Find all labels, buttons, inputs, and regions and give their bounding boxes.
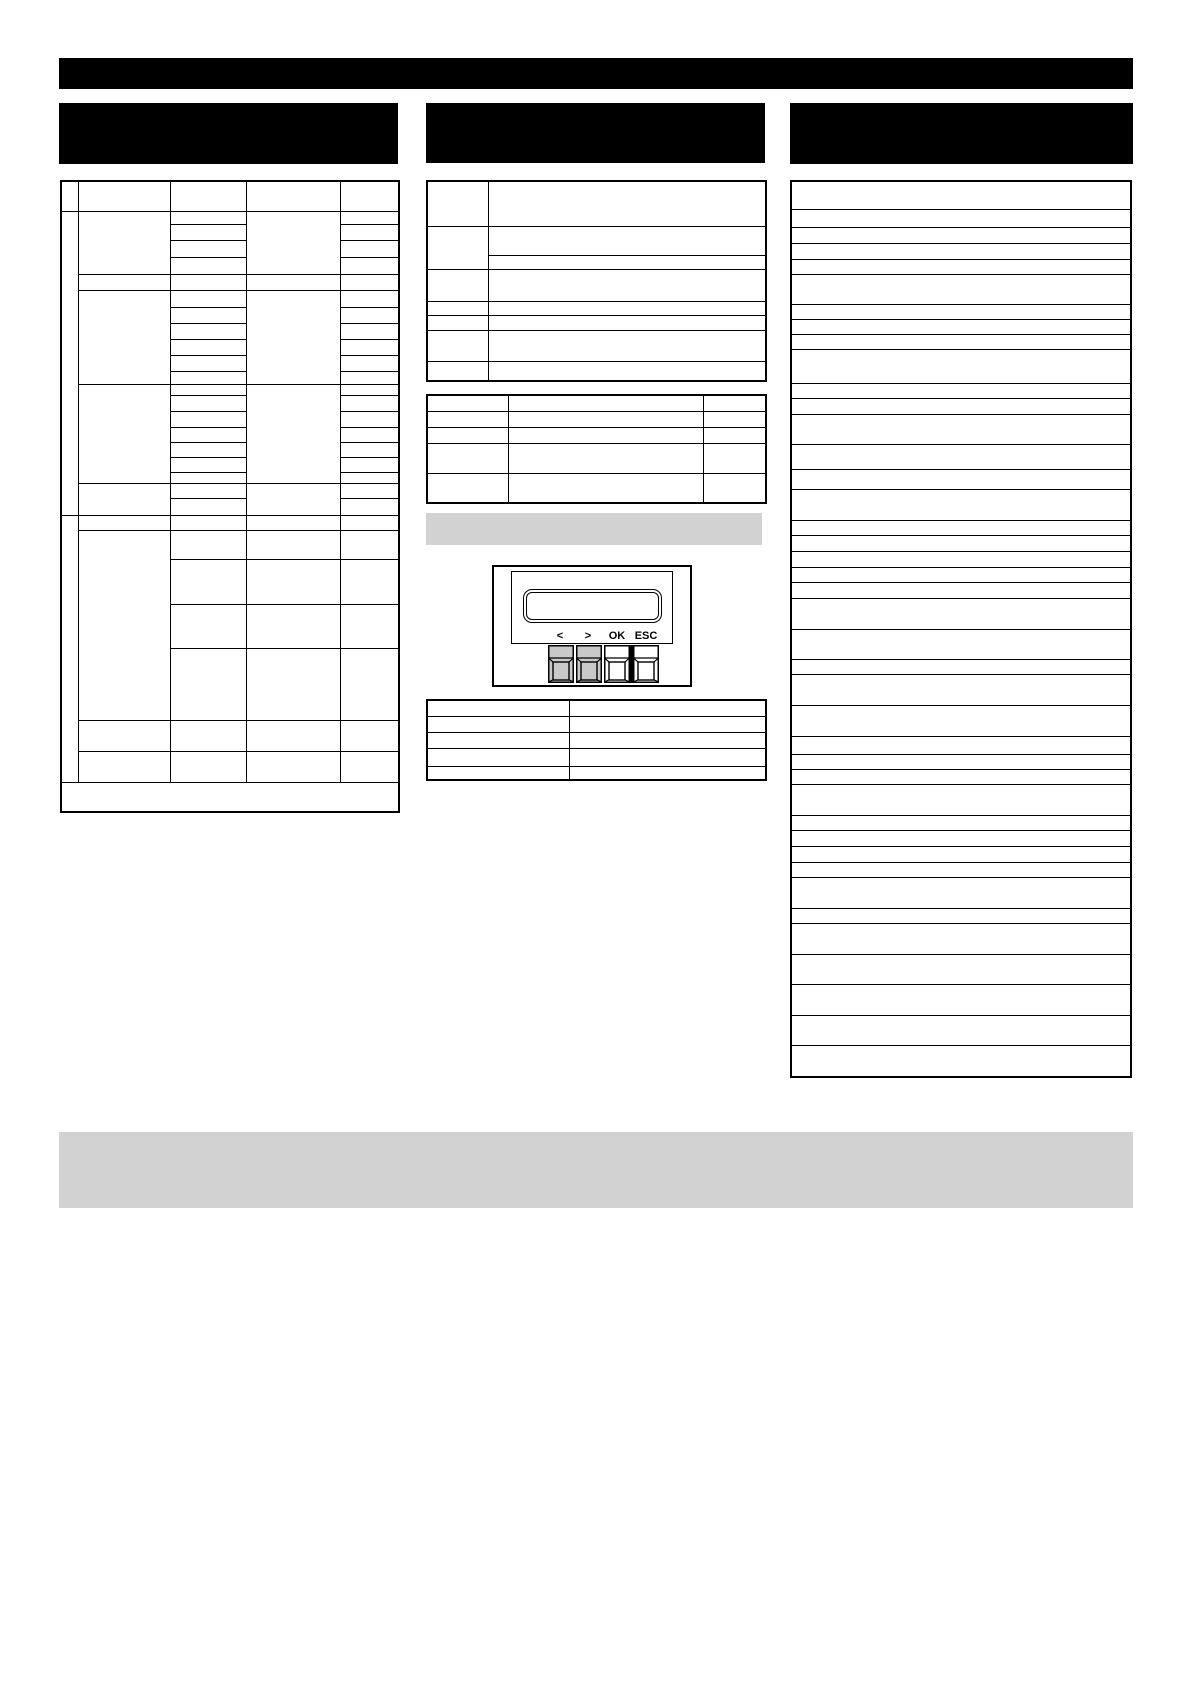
cell [340,371,399,384]
cell [170,211,246,224]
list-row [792,228,1130,244]
cell [340,307,399,323]
middle-lower-table [426,699,767,781]
cell [488,301,766,315]
cell [427,301,488,315]
cell [170,224,246,240]
left-arrow-key-icon [548,645,574,683]
cell [170,427,246,442]
cell [170,257,246,274]
scanned-manual-page: < > OK ESC [0,0,1191,1684]
cell [427,330,488,361]
cell [246,751,340,782]
cell [61,211,78,515]
cell [170,395,246,411]
key-row [494,645,694,683]
cell [340,498,399,515]
cell [61,515,78,782]
cell [703,473,766,503]
ok-key-icon [604,645,630,683]
list-row [792,583,1130,599]
key-label-esc: ESC [635,630,658,642]
list-row [792,924,1130,955]
list-row [792,536,1130,552]
cell [170,498,246,515]
list-row [792,706,1130,737]
cell [569,748,766,766]
cell [508,411,703,427]
cell [340,442,399,457]
cell [488,315,766,330]
cell [488,226,766,255]
list-row [792,770,1130,785]
cell [340,411,399,427]
cell [340,224,399,240]
bottom-note-block [59,1132,1133,1208]
cell [61,181,78,211]
list-row [792,350,1130,384]
cell [170,472,246,483]
page-title-bar-redacted [59,58,1133,89]
cell [78,720,170,751]
cell [170,604,246,648]
list-row [792,599,1130,630]
cell [569,716,766,732]
cell [340,559,399,604]
cell [427,700,569,716]
cell [427,226,488,269]
cell [78,274,170,290]
cell [170,483,246,498]
esc-key-icon [633,645,659,683]
lcd-screen [526,592,659,620]
cell [78,384,170,483]
cell [170,720,246,751]
list-row [792,909,1130,924]
right-list-table [790,180,1132,1078]
cell [340,648,399,720]
cell [246,274,340,290]
cell [170,240,246,257]
list-row [792,737,1130,755]
cell [340,211,399,224]
list-row [792,490,1130,521]
cell [246,181,340,211]
cell [488,255,766,269]
list-row [792,831,1130,847]
list-row [792,660,1130,675]
cell [488,269,766,301]
cell [488,181,766,226]
cell [427,427,508,443]
cell [340,457,399,472]
panel-face: < > OK ESC [511,571,673,644]
right-section-heading-redacted [790,103,1133,164]
middle-section-heading-redacted [426,103,765,163]
cell [569,732,766,748]
cell [246,384,340,483]
cell [78,751,170,782]
cell [703,443,766,473]
cell [340,720,399,751]
cell [427,766,569,780]
cell [427,443,508,473]
cell [340,530,399,559]
list-row [792,521,1130,536]
cell [340,339,399,355]
cell [246,559,340,604]
cell [61,782,399,812]
cell [170,457,246,472]
cell [78,515,170,530]
list-row [792,210,1130,228]
cell [340,515,399,530]
cell [427,361,488,381]
list-row [792,816,1130,831]
cell [340,355,399,371]
cell [246,720,340,751]
cell [427,473,508,503]
cell [170,274,246,290]
cell [246,211,340,274]
cell [170,515,246,530]
list-row [792,630,1130,660]
list-row [792,445,1130,470]
cell [427,181,488,226]
list-row [792,878,1130,909]
cell [427,716,569,732]
middle-upper-table [426,180,767,382]
cell [170,355,246,371]
cell [170,181,246,211]
cell [170,339,246,355]
key-label-left-arrow: < [557,630,563,642]
cell [427,732,569,748]
cell [508,443,703,473]
list-row [792,384,1130,399]
cell [340,384,399,395]
list-row [792,955,1130,985]
list-row [792,1046,1130,1076]
cell [703,395,766,411]
list-row [792,244,1130,260]
list-row [792,260,1130,275]
left-spec-table [60,180,400,813]
list-row [792,863,1130,878]
list-row [792,568,1130,583]
cell [78,211,170,274]
control-panel-diagram: < > OK ESC [492,565,692,687]
cell [246,604,340,648]
list-row [792,335,1130,350]
cell [569,700,766,716]
cell [703,411,766,427]
cell [508,395,703,411]
cell [170,323,246,339]
cell [340,472,399,483]
key-label-right-arrow: > [585,630,591,642]
cell [427,395,508,411]
list-row [792,1016,1130,1046]
cell [170,442,246,457]
cell [340,257,399,274]
cell [340,240,399,257]
cell [340,395,399,411]
list-row [792,320,1130,335]
list-row [792,785,1130,816]
key-label-ok: OK [609,630,626,642]
cell [170,384,246,395]
cell [246,530,340,559]
cell [170,290,246,307]
cell [427,748,569,766]
cell [170,307,246,323]
cell [170,559,246,604]
cell [246,290,340,384]
middle-three-col-table [426,394,767,504]
cell [340,751,399,782]
cell [703,427,766,443]
cell [427,315,488,330]
right-arrow-key-icon [576,645,602,683]
cell [340,274,399,290]
list-row [792,552,1130,568]
cell [508,427,703,443]
cell [78,290,170,384]
cell [78,530,170,720]
cell [488,361,766,381]
list-row [792,415,1130,445]
cell [508,473,703,503]
list-row [792,182,1130,210]
cell [78,181,170,211]
cell [170,648,246,720]
list-row [792,675,1130,706]
cell [246,515,340,530]
left-section-heading-redacted [59,103,398,164]
cell [170,530,246,559]
cell [427,411,508,427]
list-row [792,275,1130,305]
cell [170,411,246,427]
cell [170,751,246,782]
cell [246,483,340,515]
cell [340,323,399,339]
cell [569,766,766,780]
cell [340,604,399,648]
list-row [792,755,1130,770]
list-row [792,470,1130,490]
cell [78,483,170,515]
cell [340,290,399,307]
cell [170,371,246,384]
list-row [792,399,1130,415]
cell [246,648,340,720]
cell [488,330,766,361]
middle-subheading-strip [426,513,762,545]
cell [340,427,399,442]
cell [340,483,399,498]
cell [340,181,399,211]
list-row [792,985,1130,1016]
list-row [792,305,1130,320]
cell [427,269,488,301]
lcd-display [523,589,662,623]
list-row [792,847,1130,863]
